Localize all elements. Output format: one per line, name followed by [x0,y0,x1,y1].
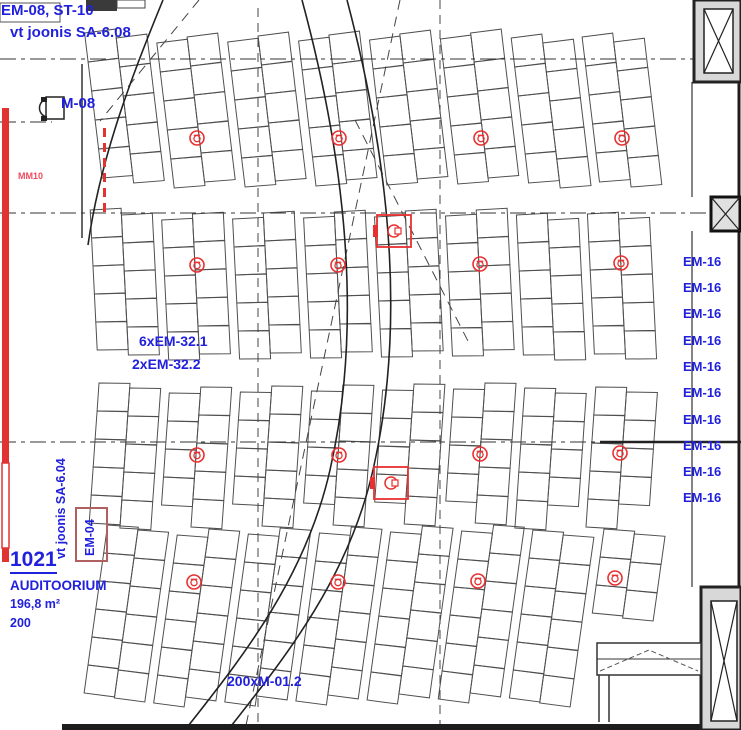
label-room-name: AUDITOORIUM [10,579,107,593]
label-room-capacity: 200 [10,617,31,630]
label-em16-1: EM-16 [683,255,721,269]
label-6xem321: 6xEM-32.1 [139,334,207,349]
label-em16-4: EM-16 [683,334,721,348]
label-2xem322: 2xEM-32.2 [132,357,200,372]
label-em04: EM-04 [84,519,97,556]
label-mm10: MM10 [18,172,43,181]
floor-plan: EM-08, ST-10 vt joonis SA-6.08 M-08 MM10… [0,0,741,730]
floor-plan-svg [0,0,741,730]
label-vt-joonis-604: vt joonis SA-6.04 [55,458,68,559]
label-em16-10: EM-16 [683,491,721,505]
label-em16-3: EM-16 [683,307,721,321]
label-em08-st10: EM-08, ST-10 [1,3,94,19]
label-200xm012: 200xM-01.2 [227,674,302,689]
label-m08: M-08 [61,96,95,112]
label-room-number: 1021 [10,549,57,574]
label-em16-6: EM-16 [683,386,721,400]
label-vt-joonis-608: vt joonis SA-6.08 [10,25,131,41]
label-em16-5: EM-16 [683,360,721,374]
label-em16-9: EM-16 [683,465,721,479]
label-em16-8: EM-16 [683,439,721,453]
label-em16-7: EM-16 [683,413,721,427]
label-em16-2: EM-16 [683,281,721,295]
label-room-area: 196,8 m² [10,598,60,611]
